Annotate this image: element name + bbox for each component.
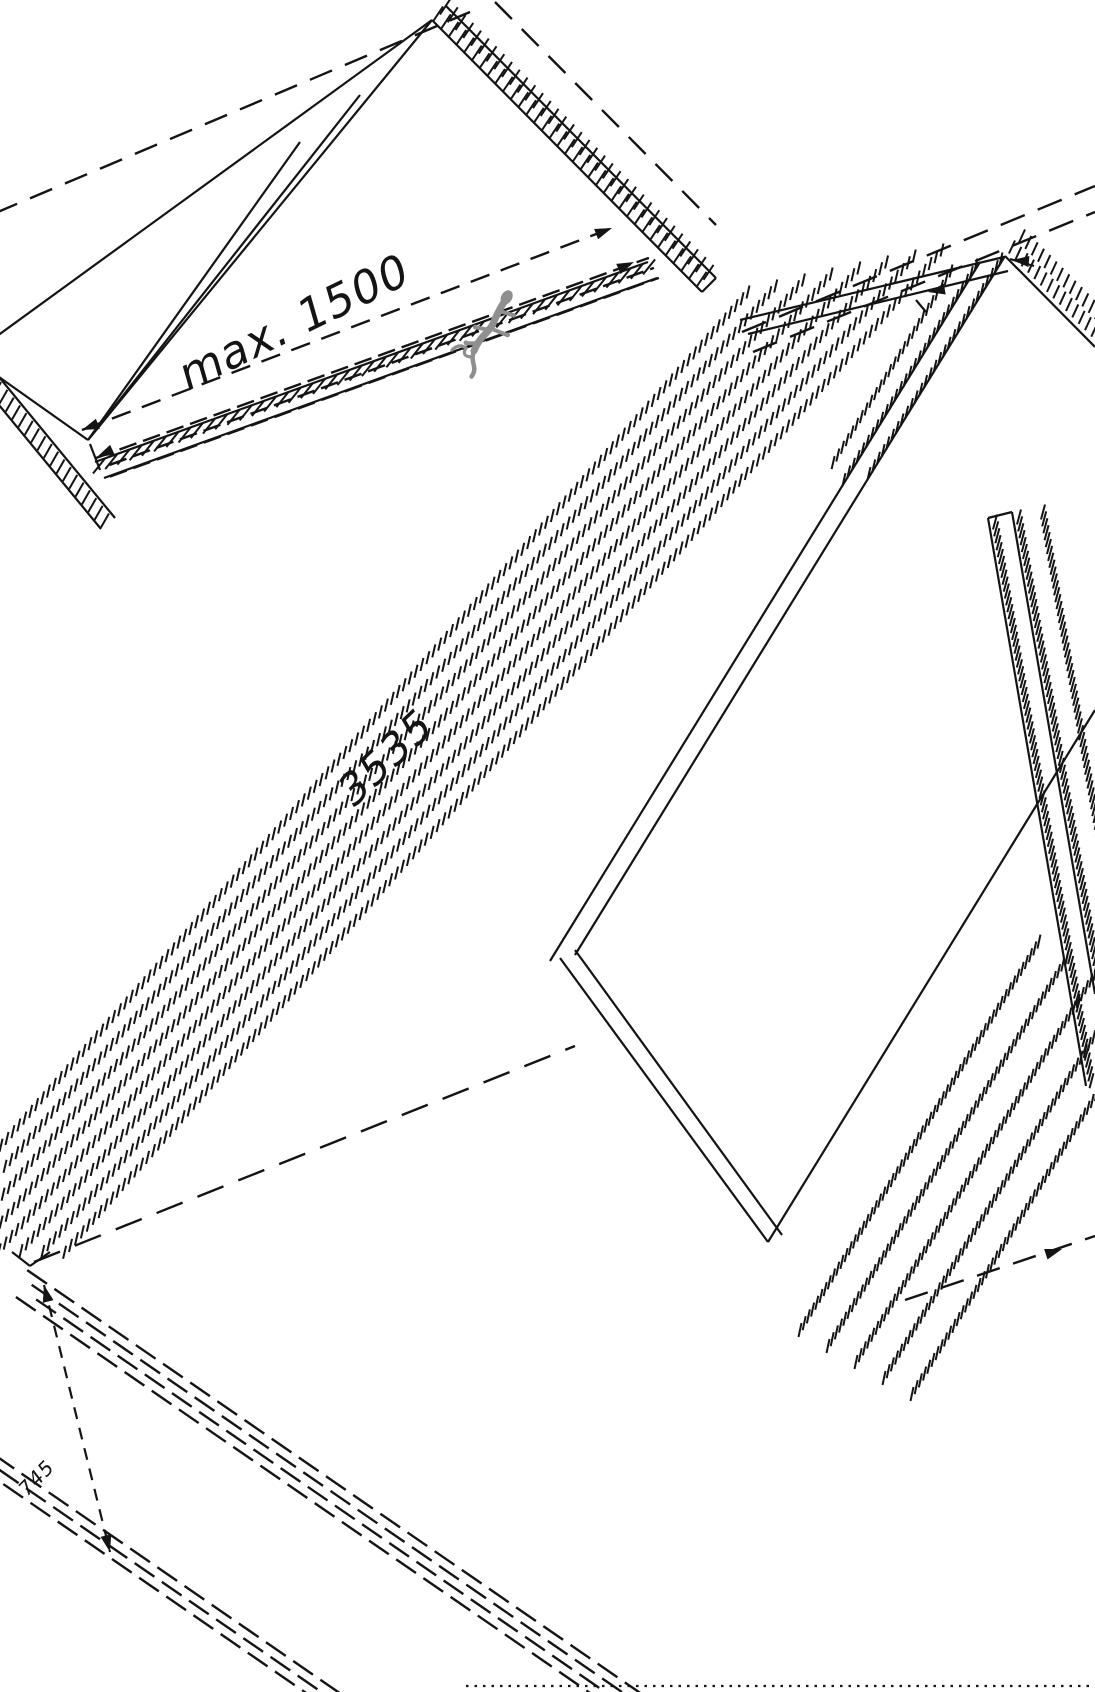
drawing-geometry [0,0,1095,1692]
technical-drawing-canvas: max. 1500 3535 745 [0,0,1095,1692]
dimension-annotations: max. 1500 3535 745 [15,242,441,1502]
page: max. 1500 3535 745 [0,0,1095,1692]
dimension-panel-length: 3535 [332,696,440,820]
